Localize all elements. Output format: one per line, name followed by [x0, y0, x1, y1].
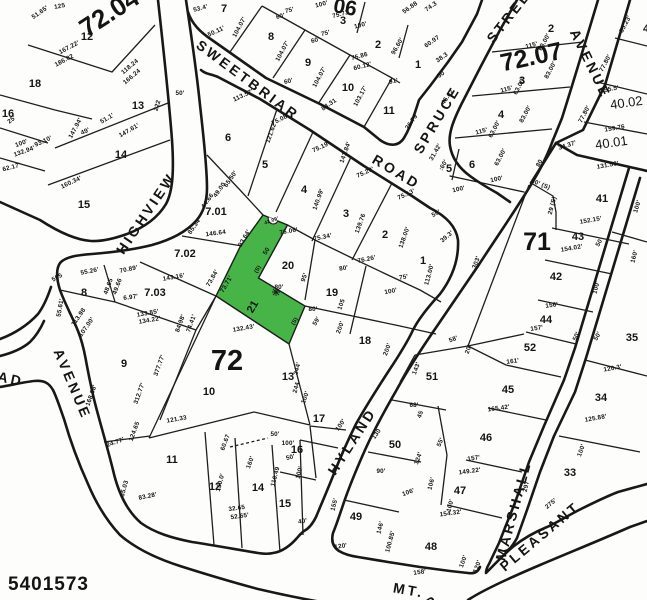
- svg-text:42: 42: [550, 271, 562, 283]
- svg-text:9: 9: [305, 57, 311, 69]
- svg-text:46: 46: [480, 432, 492, 444]
- svg-text:14: 14: [252, 482, 265, 494]
- svg-text:15: 15: [78, 199, 90, 211]
- svg-text:50': 50': [175, 90, 184, 97]
- svg-text:90': 90': [376, 468, 385, 475]
- svg-text:6: 6: [469, 159, 475, 171]
- svg-text:20: 20: [282, 260, 294, 272]
- svg-text:43: 43: [572, 231, 584, 243]
- svg-text:51: 51: [426, 371, 438, 383]
- svg-text:15: 15: [279, 498, 291, 510]
- svg-text:5: 5: [262, 159, 268, 171]
- svg-text:1: 1: [415, 59, 421, 71]
- svg-text:68': 68': [409, 402, 418, 409]
- svg-text:4: 4: [301, 184, 308, 196]
- svg-text:11: 11: [166, 454, 178, 466]
- svg-text:2: 2: [382, 229, 388, 241]
- svg-text:2: 2: [375, 39, 381, 51]
- svg-text:7.01: 7.01: [205, 206, 226, 218]
- svg-text:100': 100': [282, 440, 295, 447]
- svg-text:41: 41: [596, 193, 608, 205]
- svg-text:13: 13: [132, 100, 144, 112]
- svg-text:5401573: 5401573: [8, 574, 89, 595]
- svg-text:2: 2: [548, 23, 554, 35]
- svg-text:8: 8: [268, 31, 274, 43]
- svg-text:6: 6: [225, 132, 231, 144]
- svg-text:72: 72: [211, 345, 243, 377]
- svg-text:48: 48: [425, 541, 437, 553]
- svg-text:49: 49: [350, 511, 362, 523]
- svg-text:14: 14: [115, 149, 128, 161]
- svg-text:7.02: 7.02: [174, 248, 195, 260]
- svg-text:19: 19: [326, 287, 338, 299]
- svg-text:34: 34: [595, 392, 608, 404]
- svg-text:4: 4: [643, 23, 647, 35]
- svg-text:4: 4: [498, 109, 505, 121]
- svg-text:10: 10: [342, 82, 354, 94]
- svg-text:47: 47: [454, 485, 466, 497]
- svg-text:80': 80': [308, 306, 317, 313]
- svg-text:33: 33: [564, 467, 576, 479]
- svg-text:35: 35: [626, 332, 638, 344]
- svg-text:17: 17: [313, 413, 325, 425]
- svg-text:10: 10: [203, 386, 215, 398]
- svg-text:18: 18: [359, 335, 371, 347]
- svg-text:71: 71: [523, 228, 551, 256]
- svg-text:52: 52: [524, 342, 536, 354]
- svg-text:3: 3: [343, 208, 349, 220]
- svg-text:1: 1: [420, 255, 426, 267]
- svg-text:45: 45: [502, 384, 514, 396]
- svg-text:8: 8: [81, 287, 87, 299]
- svg-text:50: 50: [389, 439, 401, 451]
- svg-text:50': 50': [270, 431, 279, 438]
- svg-text:7.03: 7.03: [144, 287, 165, 299]
- svg-text:9: 9: [121, 358, 127, 370]
- svg-text:7: 7: [221, 3, 227, 15]
- svg-text:18: 18: [29, 78, 41, 90]
- svg-text:12: 12: [81, 31, 93, 43]
- svg-text:11: 11: [383, 105, 395, 117]
